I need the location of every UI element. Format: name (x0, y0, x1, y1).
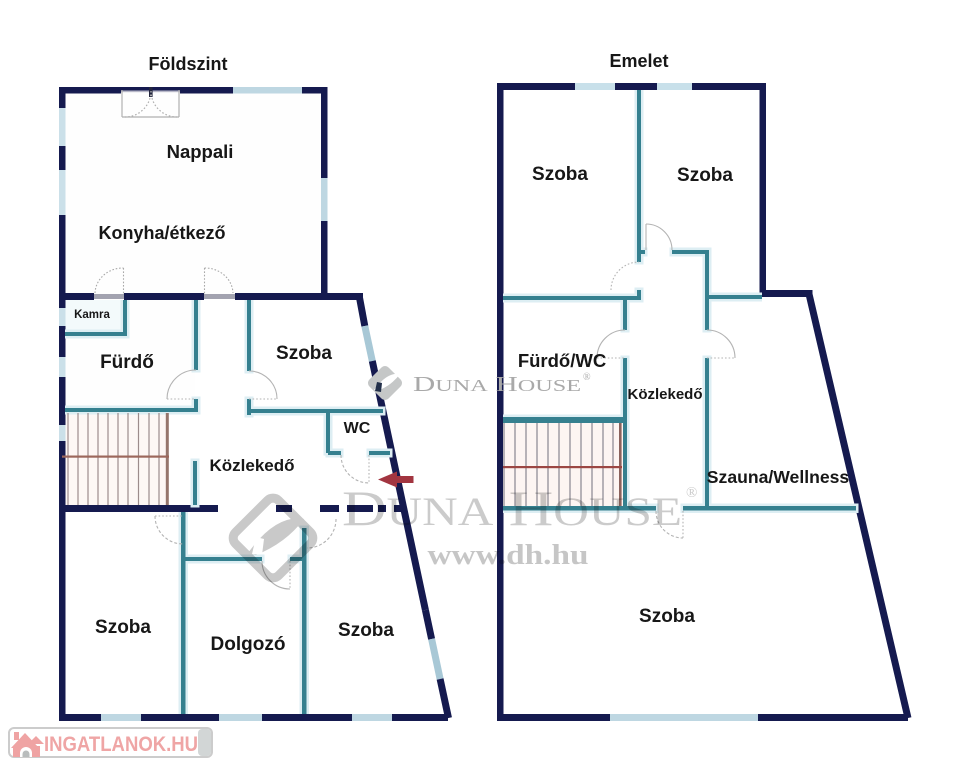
svg-text:Földszint: Földszint (149, 54, 228, 74)
svg-text:Emelet: Emelet (609, 51, 668, 71)
svg-text:Szoba: Szoba (677, 165, 733, 186)
svg-text:www.dh.hu: www.dh.hu (428, 540, 589, 571)
svg-text:Szoba: Szoba (276, 343, 332, 364)
svg-text:®: ® (686, 485, 697, 501)
svg-text:®: ® (583, 372, 591, 383)
svg-text:Fürdő/WC: Fürdő/WC (518, 350, 606, 371)
svg-text:WC: WC (344, 420, 371, 437)
svg-text:Dolgozó: Dolgozó (211, 634, 286, 655)
svg-text:Szoba: Szoba (639, 606, 695, 627)
svg-text:DUNA HOUSE: DUNA HOUSE (342, 480, 682, 536)
svg-text:Konyha/étkező: Konyha/étkező (98, 223, 225, 243)
svg-text:DUNA HOUSE: DUNA HOUSE (413, 372, 581, 396)
svg-text:Szoba: Szoba (338, 620, 394, 641)
svg-text:Fürdő: Fürdő (100, 352, 154, 373)
svg-text:Kamra: Kamra (74, 309, 110, 321)
svg-text:Szauna/Wellness: Szauna/Wellness (707, 467, 850, 487)
svg-text:INGATLANOK.HU: INGATLANOK.HU (44, 733, 198, 756)
svg-text:Közlekedő: Közlekedő (627, 386, 702, 403)
svg-text:Szoba: Szoba (95, 617, 151, 638)
svg-text:Szoba: Szoba (532, 164, 588, 185)
svg-text:Nappali: Nappali (167, 141, 234, 162)
svg-text:Közlekedő: Közlekedő (209, 456, 294, 475)
